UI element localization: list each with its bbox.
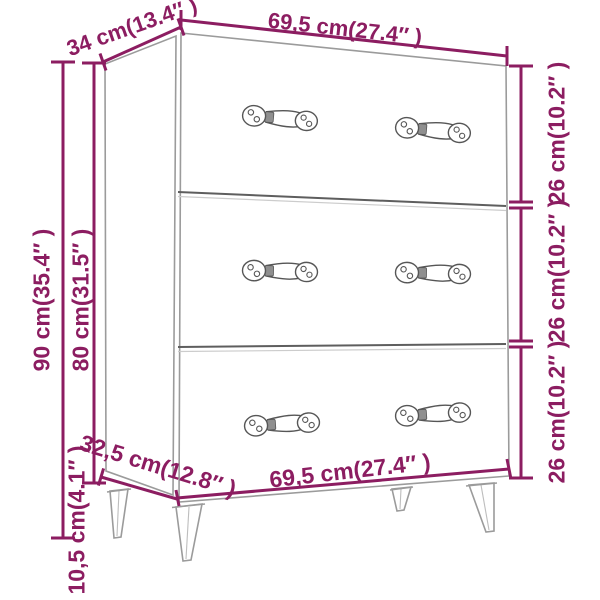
drawer-2-handle-right — [395, 262, 470, 284]
leg-back-left — [107, 489, 131, 538]
product-dimension-image: 34 cm(13.4″ ) 69,5 cm(27.4″ ) 90 cm(35.4… — [0, 0, 600, 600]
dim-line-drawer-2 — [509, 208, 533, 341]
cabinet-side-panel — [105, 36, 176, 495]
drawer-2-handle-left — [242, 260, 317, 282]
leg-front-right — [466, 483, 497, 532]
dim-line-drawer-1 — [509, 66, 533, 202]
dim-line-drawer-3 — [509, 347, 533, 478]
dim-label-drawer-3-height: 26 cm(10.2″ ) — [546, 341, 569, 484]
dim-label-drawer-1-height: 26 cm(10.2″ ) — [546, 62, 569, 205]
leg-back-right — [390, 487, 413, 511]
dim-label-drawer-2-height: 26 cm(10.2″ ) — [546, 200, 569, 343]
dim-label-total-height: 90 cm(35.4″ ) — [31, 229, 54, 372]
dim-label-body-height: 80 cm(31.5″ ) — [70, 229, 93, 372]
leg-front-left — [172, 504, 205, 561]
dim-label-leg-height: 10,5 cm(4.1″ ) — [66, 445, 89, 594]
